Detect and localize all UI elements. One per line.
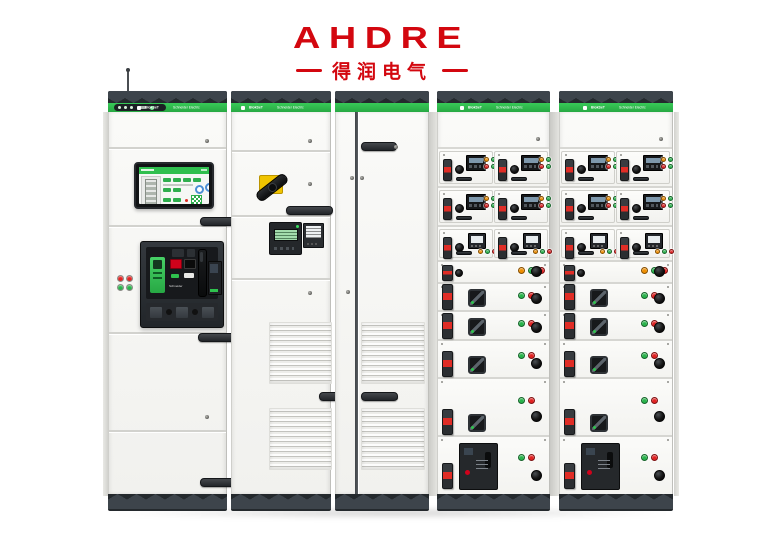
drawer-grip-handle[interactable] [443,237,452,259]
drawer-pull-handle[interactable] [456,177,472,181]
drawer-row [438,284,549,312]
control-knob[interactable] [577,269,585,277]
drawer-grip-handle[interactable] [498,159,507,181]
pushbutton-red[interactable] [661,203,666,208]
product-label: BlokSeT [591,106,605,109]
pushbutton-orange[interactable] [478,249,483,254]
air-circuit-breaker: Schneider [140,241,224,328]
pushbutton-green[interactable] [518,292,525,299]
drawer-pull-handle[interactable] [578,251,594,255]
meter-keys [524,165,536,168]
pushbutton-group [533,249,552,254]
indicator-lamp [126,284,133,291]
cabinet-1-front: Schneider [108,112,227,494]
cabinet-5-front [559,112,673,494]
meter-screen [471,236,483,243]
switch-led [471,330,474,333]
control-knob[interactable] [654,266,665,277]
rotary-cam-switch[interactable] [468,318,486,336]
drawer-grip-handle[interactable] [620,198,629,220]
mccb-breaker [459,443,498,490]
pushbutton-green[interactable] [662,249,667,254]
switch-led [593,330,596,333]
meter-screen [591,158,605,163]
meter-screen [593,236,605,243]
panel-seam [109,430,226,432]
control-knob[interactable] [577,165,586,174]
product-image-page: AHDRE 得润电气 BlokSeT Schneider Electric [0,0,764,539]
pushbutton-green[interactable] [641,454,648,461]
drawer-grip-handle[interactable] [442,284,453,310]
screw [536,137,540,141]
meter-keys [646,165,658,168]
pushbutton-orange[interactable] [484,157,489,162]
row-screw [441,381,443,383]
drawer-unit[interactable] [616,190,670,223]
vent-grille [361,408,425,470]
drawer-row [560,341,672,379]
drawer-grip-handle[interactable] [564,284,575,310]
drawer-grip-handle[interactable] [620,159,629,181]
pushbutton-red[interactable] [651,454,658,461]
base-vent-band [437,494,550,511]
meter-screen [469,197,483,202]
drawer-pull-handle[interactable] [633,177,649,181]
panel-seam [109,147,226,149]
acb-brand-label: Schneider [169,285,183,288]
frame-gap [550,112,559,496]
drawer-grip-handle[interactable] [564,409,575,435]
brand-wordmark: AHDRE [293,22,470,53]
screw [308,139,312,143]
pushbutton-orange[interactable] [600,249,605,254]
pushbutton-green[interactable] [641,352,648,359]
schneider-logo: Schneider Electric [496,106,523,109]
unit-screw [443,232,445,234]
product-logo-icon [583,106,587,110]
hmi-header-bar [139,167,209,174]
acb-status-led [171,274,179,278]
protection-relay [269,222,302,255]
hmi-touchscreen[interactable] [134,162,214,209]
mccb-red-button[interactable] [465,470,470,475]
meter-screen [469,158,483,163]
meter-keys [524,204,536,207]
unit-screw [498,193,500,195]
control-knob[interactable] [531,293,542,304]
drawer-pull-handle[interactable] [456,251,472,255]
pushbutton-green[interactable] [546,157,551,162]
acb-off-button[interactable] [170,259,182,269]
drawer-row [560,227,672,262]
pushbutton-orange[interactable] [641,267,648,274]
meter-display [590,233,608,249]
meter-keys [646,204,658,207]
door-handle[interactable] [198,333,235,342]
rotary-cam-switch[interactable] [590,414,608,432]
pushbutton-green[interactable] [668,203,673,208]
unit-screw [565,154,567,156]
drawer-unit[interactable] [494,190,548,223]
product-logo-icon [460,106,464,110]
pushbutton-red[interactable] [606,203,611,208]
pushbutton-group [661,196,673,208]
frame-gap [428,112,437,496]
hmi-breaker-graphic [141,176,161,204]
drawer-unit[interactable] [561,151,615,184]
row-screw [544,381,546,383]
drawer-grip-handle[interactable] [442,351,453,377]
door-handle[interactable] [286,206,333,215]
row-screw [563,439,565,441]
drawer-grip-handle[interactable] [620,237,629,259]
pushbutton-orange[interactable] [661,196,666,201]
subtitle-dash-left [296,69,322,72]
drawer-grip-handle[interactable] [498,198,507,220]
mccb-breaker [581,443,620,490]
schneider-logo: Schneider Electric [173,106,200,109]
rotary-cam-switch[interactable] [590,318,608,336]
pushbutton-green[interactable] [518,320,525,327]
row-screw [544,314,546,316]
mccb-screen [464,448,473,455]
antenna [127,71,129,93]
unit-screw [620,154,622,156]
pushbutton-orange[interactable] [533,249,538,254]
acb-faceplate: Schneider [146,247,218,299]
row-screw [544,343,546,345]
pushbutton-green[interactable] [641,320,648,327]
row-screw [667,264,669,266]
indicator-lamp [117,284,124,291]
switch-led [471,368,474,371]
pushbutton-group [539,196,551,208]
pushbutton-group [655,249,674,254]
meter-keys [469,204,481,207]
row-screw [544,264,546,266]
drawer-unit[interactable] [561,190,615,223]
pushbutton-green[interactable] [546,196,551,201]
pushbutton-green[interactable] [641,292,648,299]
pushbutton-red[interactable] [669,249,674,254]
pushbutton-orange[interactable] [484,196,489,201]
drawer-grip-handle[interactable] [442,313,453,339]
drawer-grip-handle[interactable] [565,237,574,259]
row-screw [667,286,669,288]
row-screw [667,381,669,383]
hmi-gauge [205,183,209,192]
drawer-row [438,341,549,379]
schneider-logo: Schneider Electric [277,106,304,109]
drawer-row [560,149,672,188]
meter-screen [524,197,538,202]
cabinet-5: BlokSeT Schneider Electric [559,91,673,511]
pushbutton-green[interactable] [518,397,525,404]
drawer-row [560,437,672,494]
unit-screw [443,154,445,156]
drawer-row [438,262,549,284]
mccb-labels [476,460,488,470]
brand-logo: AHDRE 得润电气 [0,22,764,84]
drawer-row [560,312,672,341]
drawer-unit[interactable] [439,151,493,184]
pushbutton-green[interactable] [546,203,551,208]
drawer-pull-handle[interactable] [456,216,472,220]
meter-display [645,233,663,249]
switch-led [593,368,596,371]
vent-grille [269,322,332,384]
drawer-row [560,379,672,437]
unit-screw [620,232,622,234]
indicator-lamp [117,275,124,282]
drawer-grip-handle[interactable] [564,265,575,281]
row-screw [544,439,546,441]
pushbutton-green[interactable] [668,164,673,169]
rotary-cam-switch[interactable] [468,414,486,432]
control-knob[interactable] [455,204,464,213]
door-handle[interactable] [361,142,397,151]
meter-keys [593,245,603,247]
pushbutton-green[interactable] [540,249,545,254]
drawer-row [560,188,672,227]
switch-led [471,301,474,304]
cabinet-2: BlokSeT Schneider Electric [231,91,331,511]
drawer-pull-handle[interactable] [633,251,649,255]
drawer-grip-handle[interactable] [565,198,574,220]
switch-led [593,301,596,304]
control-knob[interactable] [531,358,542,369]
mccb-red-button[interactable] [587,470,592,475]
meter-display [643,194,663,210]
control-knob[interactable] [654,358,665,369]
drawer-row [438,379,549,437]
pushbutton-red[interactable] [528,397,535,404]
base-vent-band [559,494,673,511]
pushbutton-red[interactable] [547,249,552,254]
pushbutton-group [518,397,535,404]
screw [360,176,364,180]
acb-charging-lever[interactable] [198,249,207,297]
drawer-pull-handle[interactable] [511,216,527,220]
control-knob[interactable] [654,293,665,304]
drawer-unit[interactable] [439,190,493,223]
acb-ready-indicator [184,273,194,278]
pushbutton-red[interactable] [661,164,666,169]
pushbutton-green[interactable] [668,196,673,201]
drawer-row [560,262,672,284]
meter-screen [646,158,660,163]
control-knob[interactable] [654,470,665,481]
pushbutton-orange[interactable] [606,196,611,201]
meter-display [468,233,486,249]
acb-terminal-row [146,303,218,321]
rotary-cam-switch[interactable] [590,289,608,307]
drawer-pull-handle[interactable] [511,177,527,181]
control-knob[interactable] [510,165,519,174]
unit-screw [498,154,500,156]
control-knob[interactable] [632,165,641,174]
mccb-screen [586,448,595,455]
unit-screw [443,193,445,195]
product-label: BlokSeT [249,106,263,109]
door-handle[interactable] [361,392,398,401]
pushbutton-orange[interactable] [539,157,544,162]
unit-screw [565,232,567,234]
pushbutton-group [518,454,535,461]
pushbutton-red[interactable] [484,203,489,208]
cabinet-2-front [231,112,331,494]
pushbutton-red[interactable] [651,397,658,404]
pushbutton-red[interactable] [484,164,489,169]
pushbutton-orange[interactable] [606,157,611,162]
acb-rating-module [150,257,165,293]
screw [308,182,312,186]
pushbutton-orange[interactable] [518,267,525,274]
mccb-labels [598,460,610,470]
control-knob[interactable] [577,204,586,213]
cabinet-4-front [437,112,550,494]
control-knob[interactable] [654,322,665,333]
drawer-pull-handle[interactable] [511,251,527,255]
acb-on-button[interactable] [184,259,196,269]
panel-seam [232,215,330,217]
door-edge-seam [355,112,358,494]
hmi-screen[interactable] [139,167,209,204]
pushbutton-group [641,454,658,461]
meter-display [523,233,541,249]
control-knob[interactable] [510,204,519,213]
row-screw [667,439,669,441]
pushbutton-green[interactable] [668,157,673,162]
screw [346,290,350,294]
panel-seam [232,278,330,280]
product-label: BlokSeT [468,106,482,109]
row-screw [667,343,669,345]
meter-display [643,155,663,171]
drawer-grip-handle[interactable] [564,351,575,377]
pushbutton-red[interactable] [539,203,544,208]
pushbutton-red[interactable] [528,454,535,461]
pushbutton-green[interactable] [607,249,612,254]
base-vent-band [231,494,331,511]
pushbutton-group [661,157,673,169]
row-screw [544,286,546,288]
product-label: BlokSeT [145,106,159,109]
drawer-unit[interactable] [494,151,548,184]
control-knob[interactable] [531,470,542,481]
meter-display [588,194,608,210]
meter-display [521,194,541,210]
pushbutton-red[interactable] [606,164,611,169]
pushbutton-green[interactable] [485,249,490,254]
drawer-unit[interactable] [439,229,493,258]
meter-display [466,155,486,171]
brand-subtitle-row: 得润电气 [0,57,764,84]
pushbutton-green[interactable] [546,164,551,169]
pushbutton-orange[interactable] [539,196,544,201]
cabinet-4: BlokSeT Schneider Electric [437,91,550,511]
meter-display [588,155,608,171]
drawer-grip-handle[interactable] [443,198,452,220]
meter-keys [591,204,603,207]
drawer-row [438,149,549,188]
drawer-grip-handle[interactable] [498,237,507,259]
drawer-pull-handle[interactable] [578,177,594,181]
pushbutton-green[interactable] [518,352,525,359]
pushbutton-orange[interactable] [655,249,660,254]
drawer-grip-handle[interactable] [442,409,453,435]
control-knob[interactable] [531,411,542,422]
product-logo-icon [241,106,245,110]
product-logo-icon [137,106,141,110]
control-knob[interactable] [455,165,464,174]
acb-trip-unit-display [208,261,222,295]
drawer-pull-handle[interactable] [633,216,649,220]
drawer-grip-handle[interactable] [565,159,574,181]
drawer-pull-handle[interactable] [578,216,594,220]
pushbutton-green[interactable] [518,454,525,461]
control-knob[interactable] [455,269,463,277]
schneider-logo: Schneider Electric [619,106,646,109]
meter-keys [526,245,536,247]
rotary-cam-switch[interactable] [468,289,486,307]
indicator-lamp-cluster [117,275,133,291]
drawer-grip-handle[interactable] [564,313,575,339]
pushbutton-red[interactable] [539,164,544,169]
hmi-gauge [195,185,204,194]
base-vent-band [335,494,429,511]
rotary-cam-switch[interactable] [468,356,486,374]
drawer-grip-handle[interactable] [442,463,453,489]
pushbutton-orange[interactable] [661,157,666,162]
control-knob[interactable] [531,266,542,277]
cabinet-1: BlokSeT Schneider Electric [108,91,227,511]
drawer-row [438,437,549,494]
row-screw [563,343,565,345]
master-rotary-switch[interactable] [259,175,283,197]
rotary-cam-switch[interactable] [590,356,608,374]
drawer-unit[interactable] [616,229,670,258]
control-knob[interactable] [632,204,641,213]
meter-screen [646,197,660,202]
unit-screw [565,193,567,195]
drawer-grip-handle[interactable] [443,159,452,181]
indicator-lamp [126,275,133,282]
meter-keys [591,165,603,168]
screw [659,137,663,141]
screw [308,291,312,295]
drawer-unit[interactable] [494,229,548,258]
control-knob[interactable] [654,411,665,422]
pushbutton-group [539,157,551,169]
drawer-grip-handle[interactable] [564,463,575,489]
screw [394,145,398,149]
vent-grille [361,322,425,384]
drawer-row [438,312,549,341]
brand-subtitle: 得润电气 [332,57,432,84]
row-screw [563,381,565,383]
meter-keys [471,245,481,247]
blank-top-panel [438,112,549,149]
drawer-unit[interactable] [616,151,670,184]
unit-screw [498,232,500,234]
pushbutton-group [641,397,658,404]
drawer-grip-handle[interactable] [442,265,453,281]
pushbutton-green[interactable] [641,397,648,404]
drawer-unit[interactable] [561,229,615,258]
blank-top-panel [560,112,672,149]
control-knob[interactable] [531,322,542,333]
